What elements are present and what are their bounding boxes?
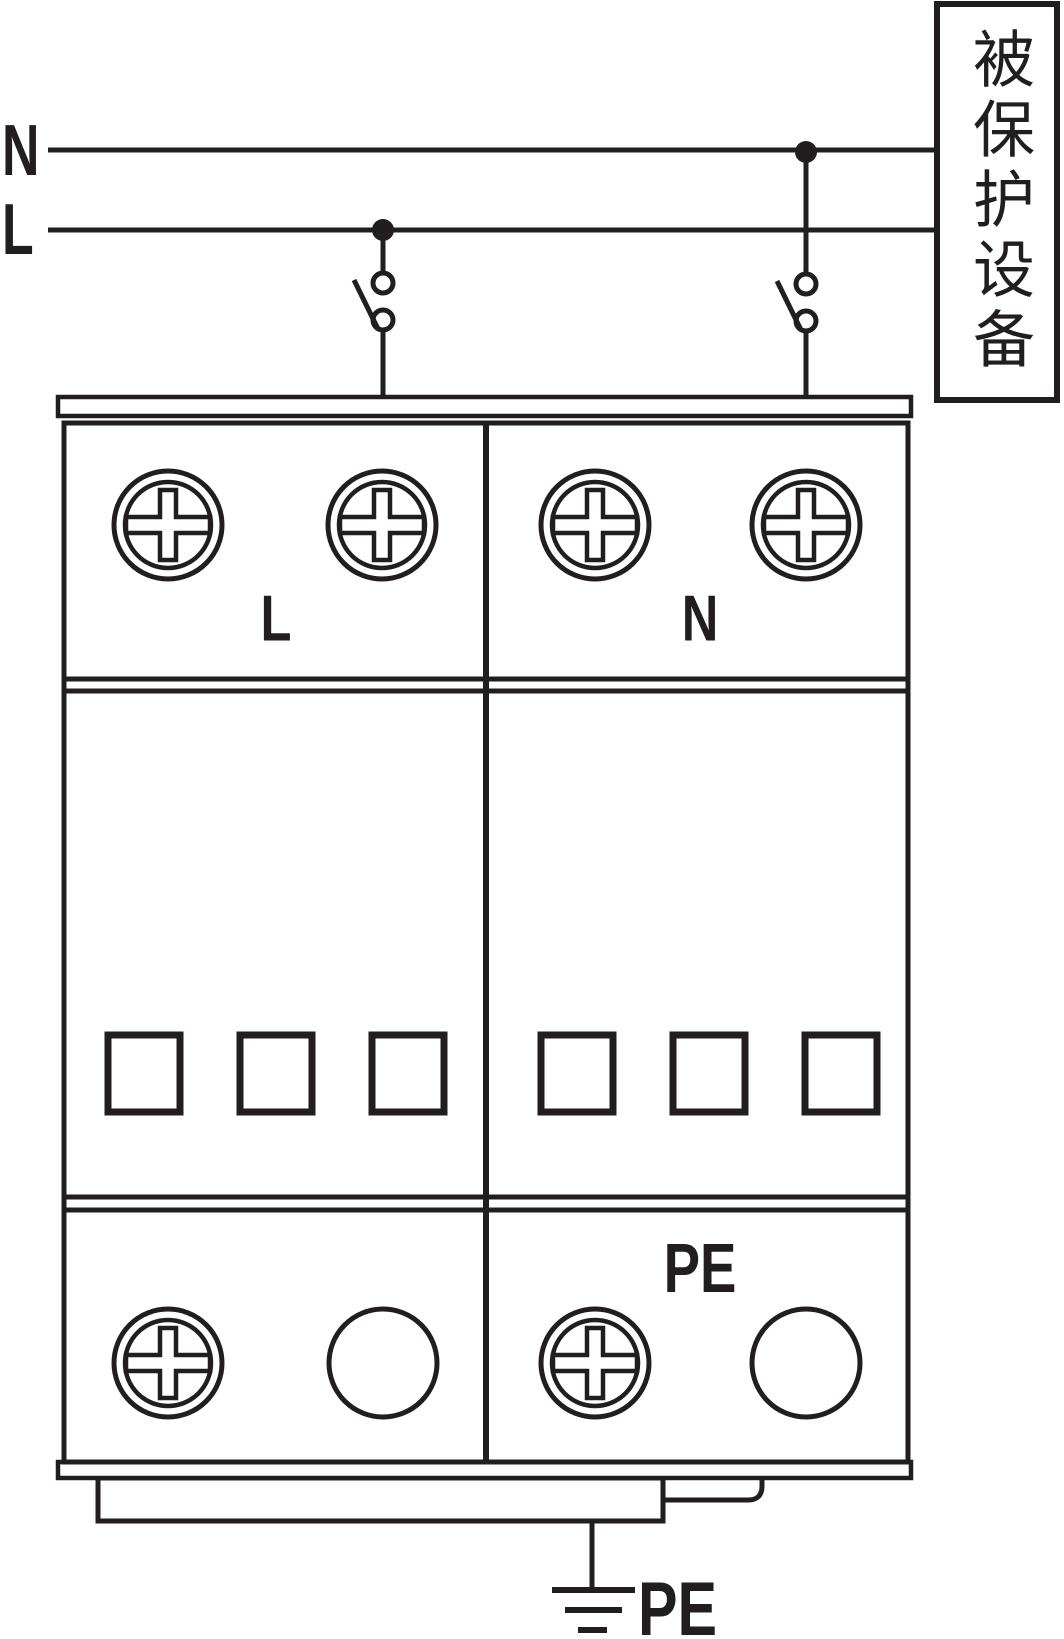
pe-terminal-label: PE	[664, 1233, 737, 1303]
pe-terminal-screw-right	[541, 1309, 649, 1417]
protected-equipment-text: 被保护设备	[952, 27, 1042, 377]
ground-connection	[552, 1521, 635, 1630]
device-top-rail	[58, 397, 911, 416]
indicator-window-1	[108, 1035, 180, 1112]
protected-equipment-label-box: 被保护设备	[937, 4, 1057, 400]
terminal-screw-n2	[752, 471, 860, 579]
terminal-screw-l2	[328, 471, 436, 579]
spd-device	[58, 397, 911, 1478]
wire-label-n: N	[2, 115, 39, 187]
indicator-window-3	[372, 1035, 444, 1112]
n-disconnector-switch	[777, 274, 816, 331]
indicator-window-5	[673, 1035, 745, 1112]
ground-pe-label: PE	[638, 1572, 717, 1639]
module-label-n: N	[682, 586, 719, 651]
terminal-screw-l1	[114, 471, 222, 579]
wire-port-circle-right	[752, 1309, 860, 1417]
pe-terminal-screw-left	[114, 1309, 222, 1417]
wiring-diagram-svg	[0, 0, 1064, 1639]
module-label-l: L	[261, 586, 292, 651]
indicator-window-4	[541, 1035, 613, 1112]
din-bracket	[98, 1478, 663, 1521]
switch-contact-circle	[373, 273, 393, 293]
supply-wires	[48, 141, 937, 400]
din-bracket-tab	[663, 1478, 762, 1500]
switch-contact-circle	[796, 274, 816, 294]
indicator-window-6	[805, 1035, 877, 1112]
wiring-diagram-canvas: N L 被保护设备 L N PE PE	[0, 0, 1064, 1639]
l-disconnector-switch	[354, 273, 393, 330]
wire-label-l: L	[2, 194, 34, 266]
terminal-screw-n1	[541, 471, 649, 579]
indicator-window-2	[240, 1035, 312, 1112]
wire-port-circle-left	[329, 1309, 437, 1417]
